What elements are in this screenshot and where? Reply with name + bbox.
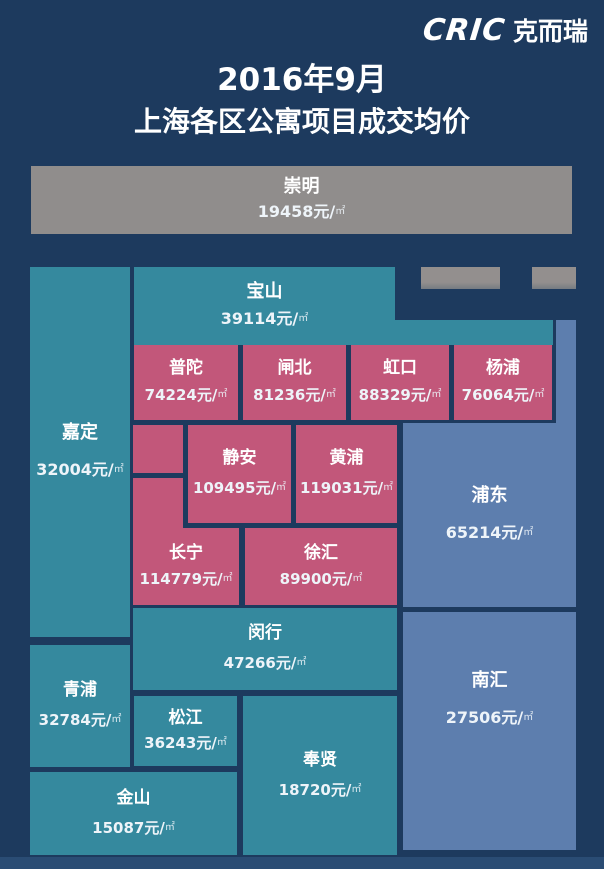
district-name: 杨浦 (486, 357, 520, 379)
district-block-changning: 长宁 114779元/㎡ (133, 528, 239, 605)
district-price: 119031元/㎡ (300, 478, 393, 501)
district-block-baoshan-extension (395, 320, 553, 345)
district-name: 奉贤 (303, 749, 337, 771)
district-name: 浦东 (472, 485, 508, 507)
district-price: 18720元/㎡ (279, 780, 362, 803)
district-price: 47266元/㎡ (224, 653, 307, 676)
district-name: 虹口 (383, 357, 417, 379)
title-main: 上海各区公寓项目成交均价 (0, 102, 604, 142)
cric-logo: CRIC 克而瑞 (423, 12, 588, 48)
district-block-putuo: 普陀 74224元/㎡ (134, 345, 238, 420)
district-block-jinshan: 金山 15087元/㎡ (30, 772, 237, 855)
district-name: 金山 (117, 787, 151, 809)
district-name: 宝山 (247, 281, 283, 303)
district-name: 南汇 (472, 670, 508, 692)
cric-logo-cjk: 克而瑞 (513, 12, 588, 48)
district-block-zhabei: 闸北 81236元/㎡ (243, 345, 346, 420)
district-name: 嘉定 (62, 422, 98, 444)
district-price: 15087元/㎡ (92, 818, 175, 841)
district-price: 36243元/㎡ (144, 733, 227, 756)
footer-strip (0, 857, 604, 869)
district-block-minhang: 闵行 47266元/㎡ (133, 608, 397, 690)
district-block-huangpu: 黄浦 119031元/㎡ (296, 425, 397, 523)
district-price: 76064元/㎡ (462, 385, 545, 408)
district-block-songjiang: 松江 36243元/㎡ (134, 696, 237, 766)
district-block-pudong-strip (556, 320, 576, 423)
district-price: 89900元/㎡ (280, 569, 363, 592)
district-price: 81236元/㎡ (253, 385, 336, 408)
district-block-fengxian: 奉贤 18720元/㎡ (243, 696, 397, 855)
district-name: 长宁 (169, 542, 203, 564)
district-price: 109495元/㎡ (193, 478, 286, 501)
district-block-nanhui: 南汇 27506元/㎡ (403, 612, 576, 850)
district-name: 崇明 (284, 176, 320, 198)
district-name: 闵行 (248, 622, 282, 644)
district-block-jingan: 静安 109495元/㎡ (188, 425, 291, 523)
cric-logo-latin: CRIC (421, 13, 507, 48)
district-name: 闸北 (278, 357, 312, 379)
district-price: 32784元/㎡ (39, 710, 122, 733)
district-block-hongkou: 虹口 88329元/㎡ (351, 345, 449, 420)
district-block-qingpu: 青浦 32784元/㎡ (30, 645, 130, 767)
district-block-pudong: 浦东 65214元/㎡ (403, 423, 576, 607)
district-block-yangpu: 杨浦 76064元/㎡ (454, 345, 552, 420)
district-price: 27506元/㎡ (446, 708, 534, 731)
district-name: 普陀 (169, 357, 203, 379)
district-price: 65214元/㎡ (446, 523, 534, 546)
district-price: 32004元/㎡ (36, 460, 124, 483)
district-block-chongming: 崇明 19458元/㎡ (31, 166, 572, 234)
district-block-jiading: 嘉定 32004元/㎡ (30, 267, 130, 637)
district-price: 39114元/㎡ (221, 309, 309, 332)
island-block-2 (532, 267, 576, 289)
title-date: 2016年9月 (0, 58, 604, 102)
page-title: 2016年9月 上海各区公寓项目成交均价 (0, 58, 604, 142)
district-name: 黄浦 (330, 447, 364, 469)
district-block-baoshan: 宝山 39114元/㎡ (134, 267, 395, 345)
district-name: 徐汇 (304, 542, 338, 564)
district-price: 88329元/㎡ (359, 385, 442, 408)
district-block-xuhui: 徐汇 89900元/㎡ (245, 528, 397, 605)
island-block-1 (421, 267, 500, 289)
district-price: 114779元/㎡ (139, 569, 232, 592)
district-name: 静安 (223, 447, 257, 469)
district-name: 青浦 (63, 679, 97, 701)
district-price: 74224元/㎡ (145, 385, 228, 408)
district-block-changning-north (133, 425, 183, 473)
district-price: 19458元/㎡ (258, 202, 346, 225)
district-name: 松江 (169, 707, 203, 729)
